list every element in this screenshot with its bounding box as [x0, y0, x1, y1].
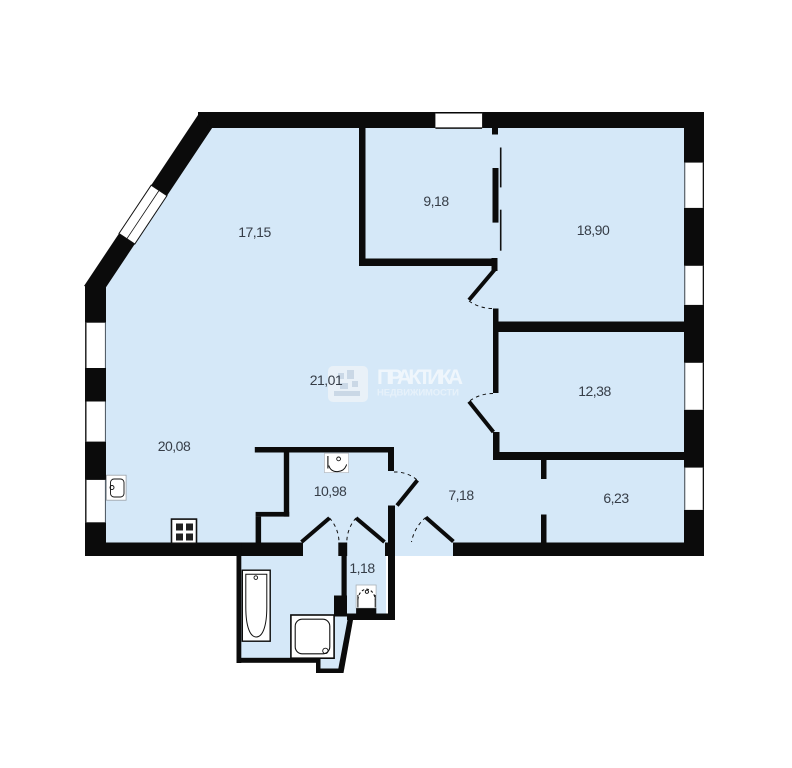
- svg-text:6,23: 6,23: [603, 490, 629, 506]
- svg-text:17,15: 17,15: [238, 224, 271, 240]
- svg-text:НЕДВИЖИМОСТИ: НЕДВИЖИМОСТИ: [377, 388, 459, 399]
- svg-text:7,18: 7,18: [448, 487, 474, 503]
- svg-text:9,18: 9,18: [423, 193, 449, 209]
- svg-text:1,18: 1,18: [349, 560, 375, 576]
- svg-text:21,01: 21,01: [310, 372, 343, 388]
- svg-text:ПРАКТИКА: ПРАКТИКА: [377, 366, 463, 389]
- svg-text:12,38: 12,38: [578, 383, 611, 399]
- svg-text:20,08: 20,08: [158, 438, 191, 454]
- svg-text:10,98: 10,98: [314, 483, 347, 499]
- svg-text:18,90: 18,90: [577, 222, 610, 238]
